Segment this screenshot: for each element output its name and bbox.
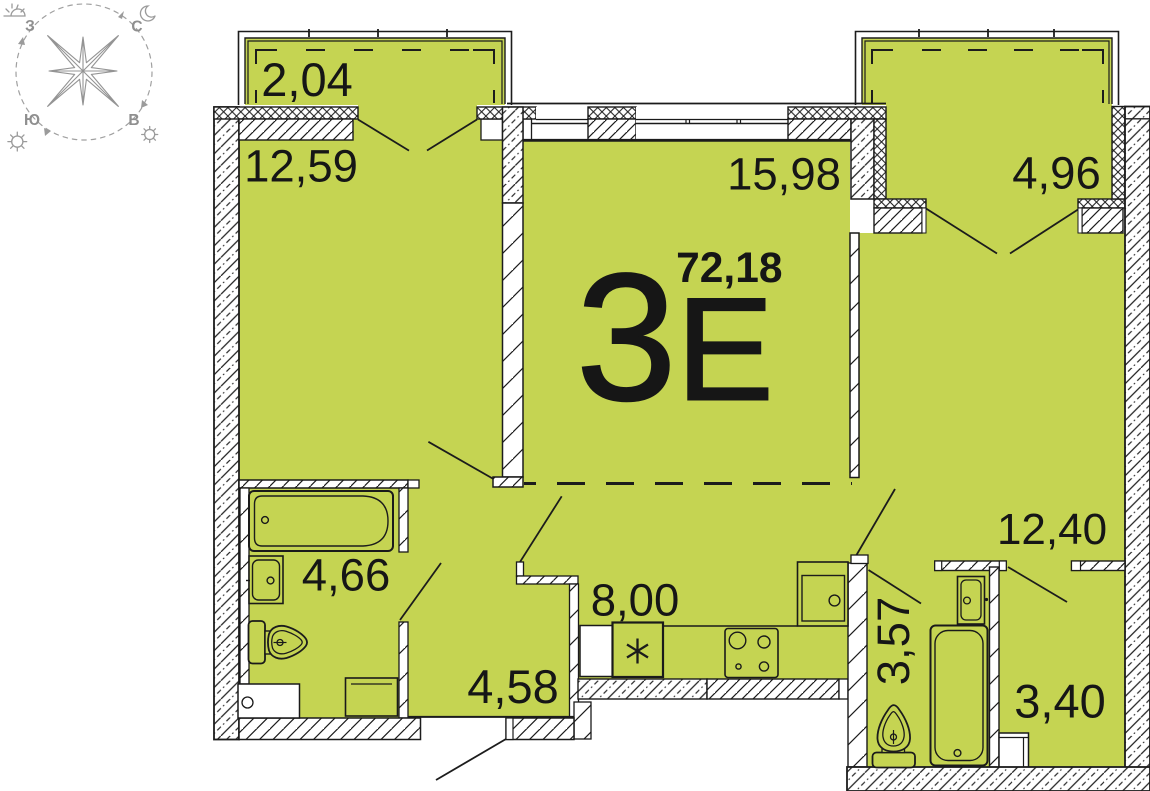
- svg-text:Ю: Ю: [24, 112, 40, 129]
- svg-text:3,40: 3,40: [1014, 675, 1105, 728]
- svg-text:15,98: 15,98: [727, 149, 841, 200]
- svg-text:С: С: [131, 19, 142, 36]
- svg-text:З: З: [25, 18, 35, 35]
- svg-text:4,96: 4,96: [1012, 148, 1101, 199]
- svg-text:12,59: 12,59: [244, 141, 358, 192]
- svg-text:12,40: 12,40: [997, 505, 1107, 554]
- svg-text:В: В: [128, 112, 139, 129]
- svg-text:4,58: 4,58: [467, 660, 558, 713]
- svg-text:Е: Е: [676, 268, 773, 431]
- svg-text:3: 3: [576, 237, 677, 439]
- svg-text:2,04: 2,04: [261, 53, 352, 106]
- svg-text:3,57: 3,57: [868, 597, 919, 686]
- svg-text:4,66: 4,66: [302, 550, 391, 601]
- svg-text:8,00: 8,00: [591, 575, 680, 626]
